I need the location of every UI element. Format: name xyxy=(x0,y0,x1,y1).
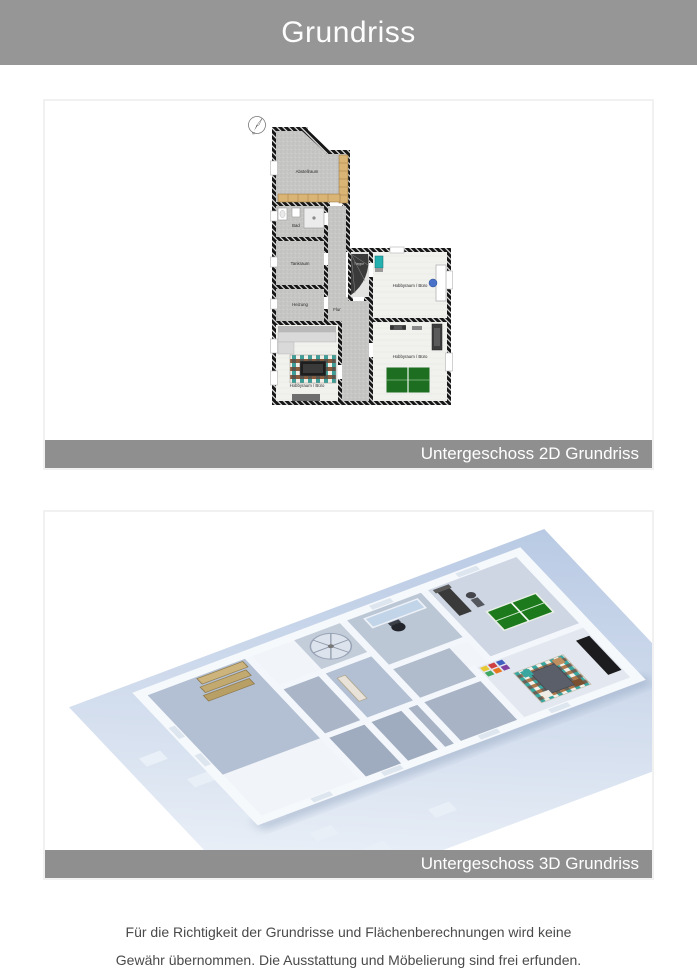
plan-3d-panel: Untergeschoss 3D Grundriss xyxy=(43,510,654,880)
plan-3d-caption: Untergeschoss 3D Grundriss xyxy=(45,850,652,878)
disclaimer-line-2: Gewähr übernommen. Die Ausstattung und M… xyxy=(0,946,697,974)
table-tennis-table xyxy=(386,367,430,393)
plan-2d-figure: N Abstellraum Bad Tankraum Heizung Flur … xyxy=(45,101,652,440)
room-label-hobbyraum-right: Hobbyraum / Büro xyxy=(392,354,427,359)
room-label-heizung: Heizung xyxy=(292,302,308,307)
plan-3d-drawing xyxy=(45,512,652,850)
room-label-abstellraum: Abstellraum xyxy=(295,169,318,174)
plan-2d-drawing: N Abstellraum Bad Tankraum Heizung Flur … xyxy=(244,115,454,407)
plan-2d-caption: Untergeschoss 2D Grundriss xyxy=(45,440,652,468)
room-label-flur: Flur xyxy=(333,307,341,312)
page-header: Grundriss xyxy=(0,0,697,65)
room-label-tankraum: Tankraum xyxy=(290,261,309,266)
north-arrow-icon: N xyxy=(248,117,265,136)
disclaimer-line-1: Für die Richtigkeit der Grundrisse und F… xyxy=(0,918,697,946)
page-title: Grundriss xyxy=(281,16,416,50)
room-label-hobbyraum-top: Hobbyraum / Büro xyxy=(392,283,427,288)
plan-2d-panel: N Abstellraum Bad Tankraum Heizung Flur … xyxy=(43,99,654,470)
disclaimer: Für die Richtigkeit der Grundrisse und F… xyxy=(0,918,697,974)
plan-3d-figure xyxy=(45,512,652,850)
room-label-hobbyraum-left: Hobbyraum / Büro xyxy=(289,383,324,388)
room-label-bad: Bad xyxy=(292,223,300,228)
room-label-treppe: Treppe xyxy=(354,262,364,266)
